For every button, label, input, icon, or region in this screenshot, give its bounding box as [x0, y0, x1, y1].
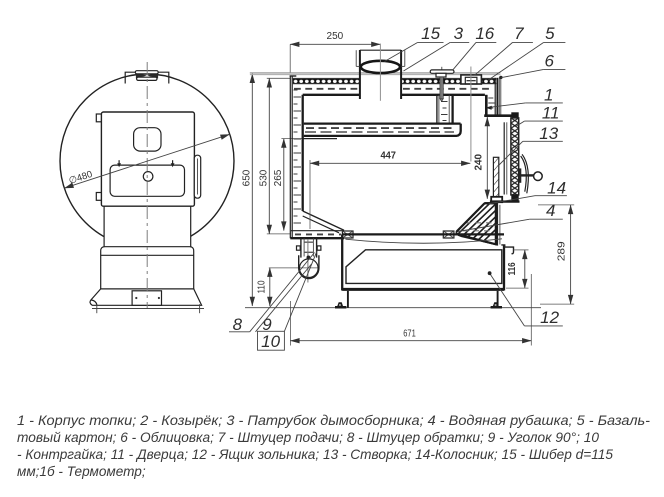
- svg-text:16: 16: [475, 24, 494, 43]
- svg-text:265: 265: [273, 169, 284, 186]
- svg-text:5: 5: [545, 24, 555, 43]
- svg-text:11: 11: [542, 104, 560, 123]
- svg-text:12: 12: [540, 308, 559, 327]
- svg-text:530: 530: [258, 169, 269, 186]
- svg-text:13: 13: [539, 124, 558, 143]
- svg-text:671: 671: [403, 329, 416, 340]
- svg-text:мм;1б - Термометр;: мм;1б - Термометр;: [17, 464, 146, 479]
- svg-text:116: 116: [507, 262, 518, 275]
- svg-text:15: 15: [421, 24, 440, 43]
- svg-text:4: 4: [546, 201, 555, 220]
- svg-text:1: 1: [544, 85, 553, 104]
- svg-text:3: 3: [454, 24, 464, 43]
- svg-text:7: 7: [514, 24, 524, 43]
- svg-text:650: 650: [242, 169, 253, 186]
- svg-text:447: 447: [380, 151, 396, 162]
- svg-text:289: 289: [557, 241, 568, 262]
- svg-text:6: 6: [544, 51, 554, 70]
- svg-text:1 - Корпус топки; 2 - Козырёк;: 1 - Корпус топки; 2 - Козырёк; 3 - Патру…: [17, 413, 651, 428]
- svg-text:240: 240: [474, 154, 485, 171]
- svg-text:- Контргайка; 11 - Дверца; 12: - Контргайка; 11 - Дверца; 12 - Ящик зол…: [17, 447, 613, 462]
- svg-text:товый картон; 6 - Облицовка; 7: товый картон; 6 - Облицовка; 7 - Штуцер …: [17, 430, 599, 445]
- svg-text:14: 14: [547, 178, 566, 197]
- svg-text:250: 250: [327, 31, 344, 42]
- svg-text:8: 8: [233, 315, 243, 334]
- svg-text:110: 110: [256, 280, 267, 293]
- svg-text:10: 10: [261, 332, 280, 351]
